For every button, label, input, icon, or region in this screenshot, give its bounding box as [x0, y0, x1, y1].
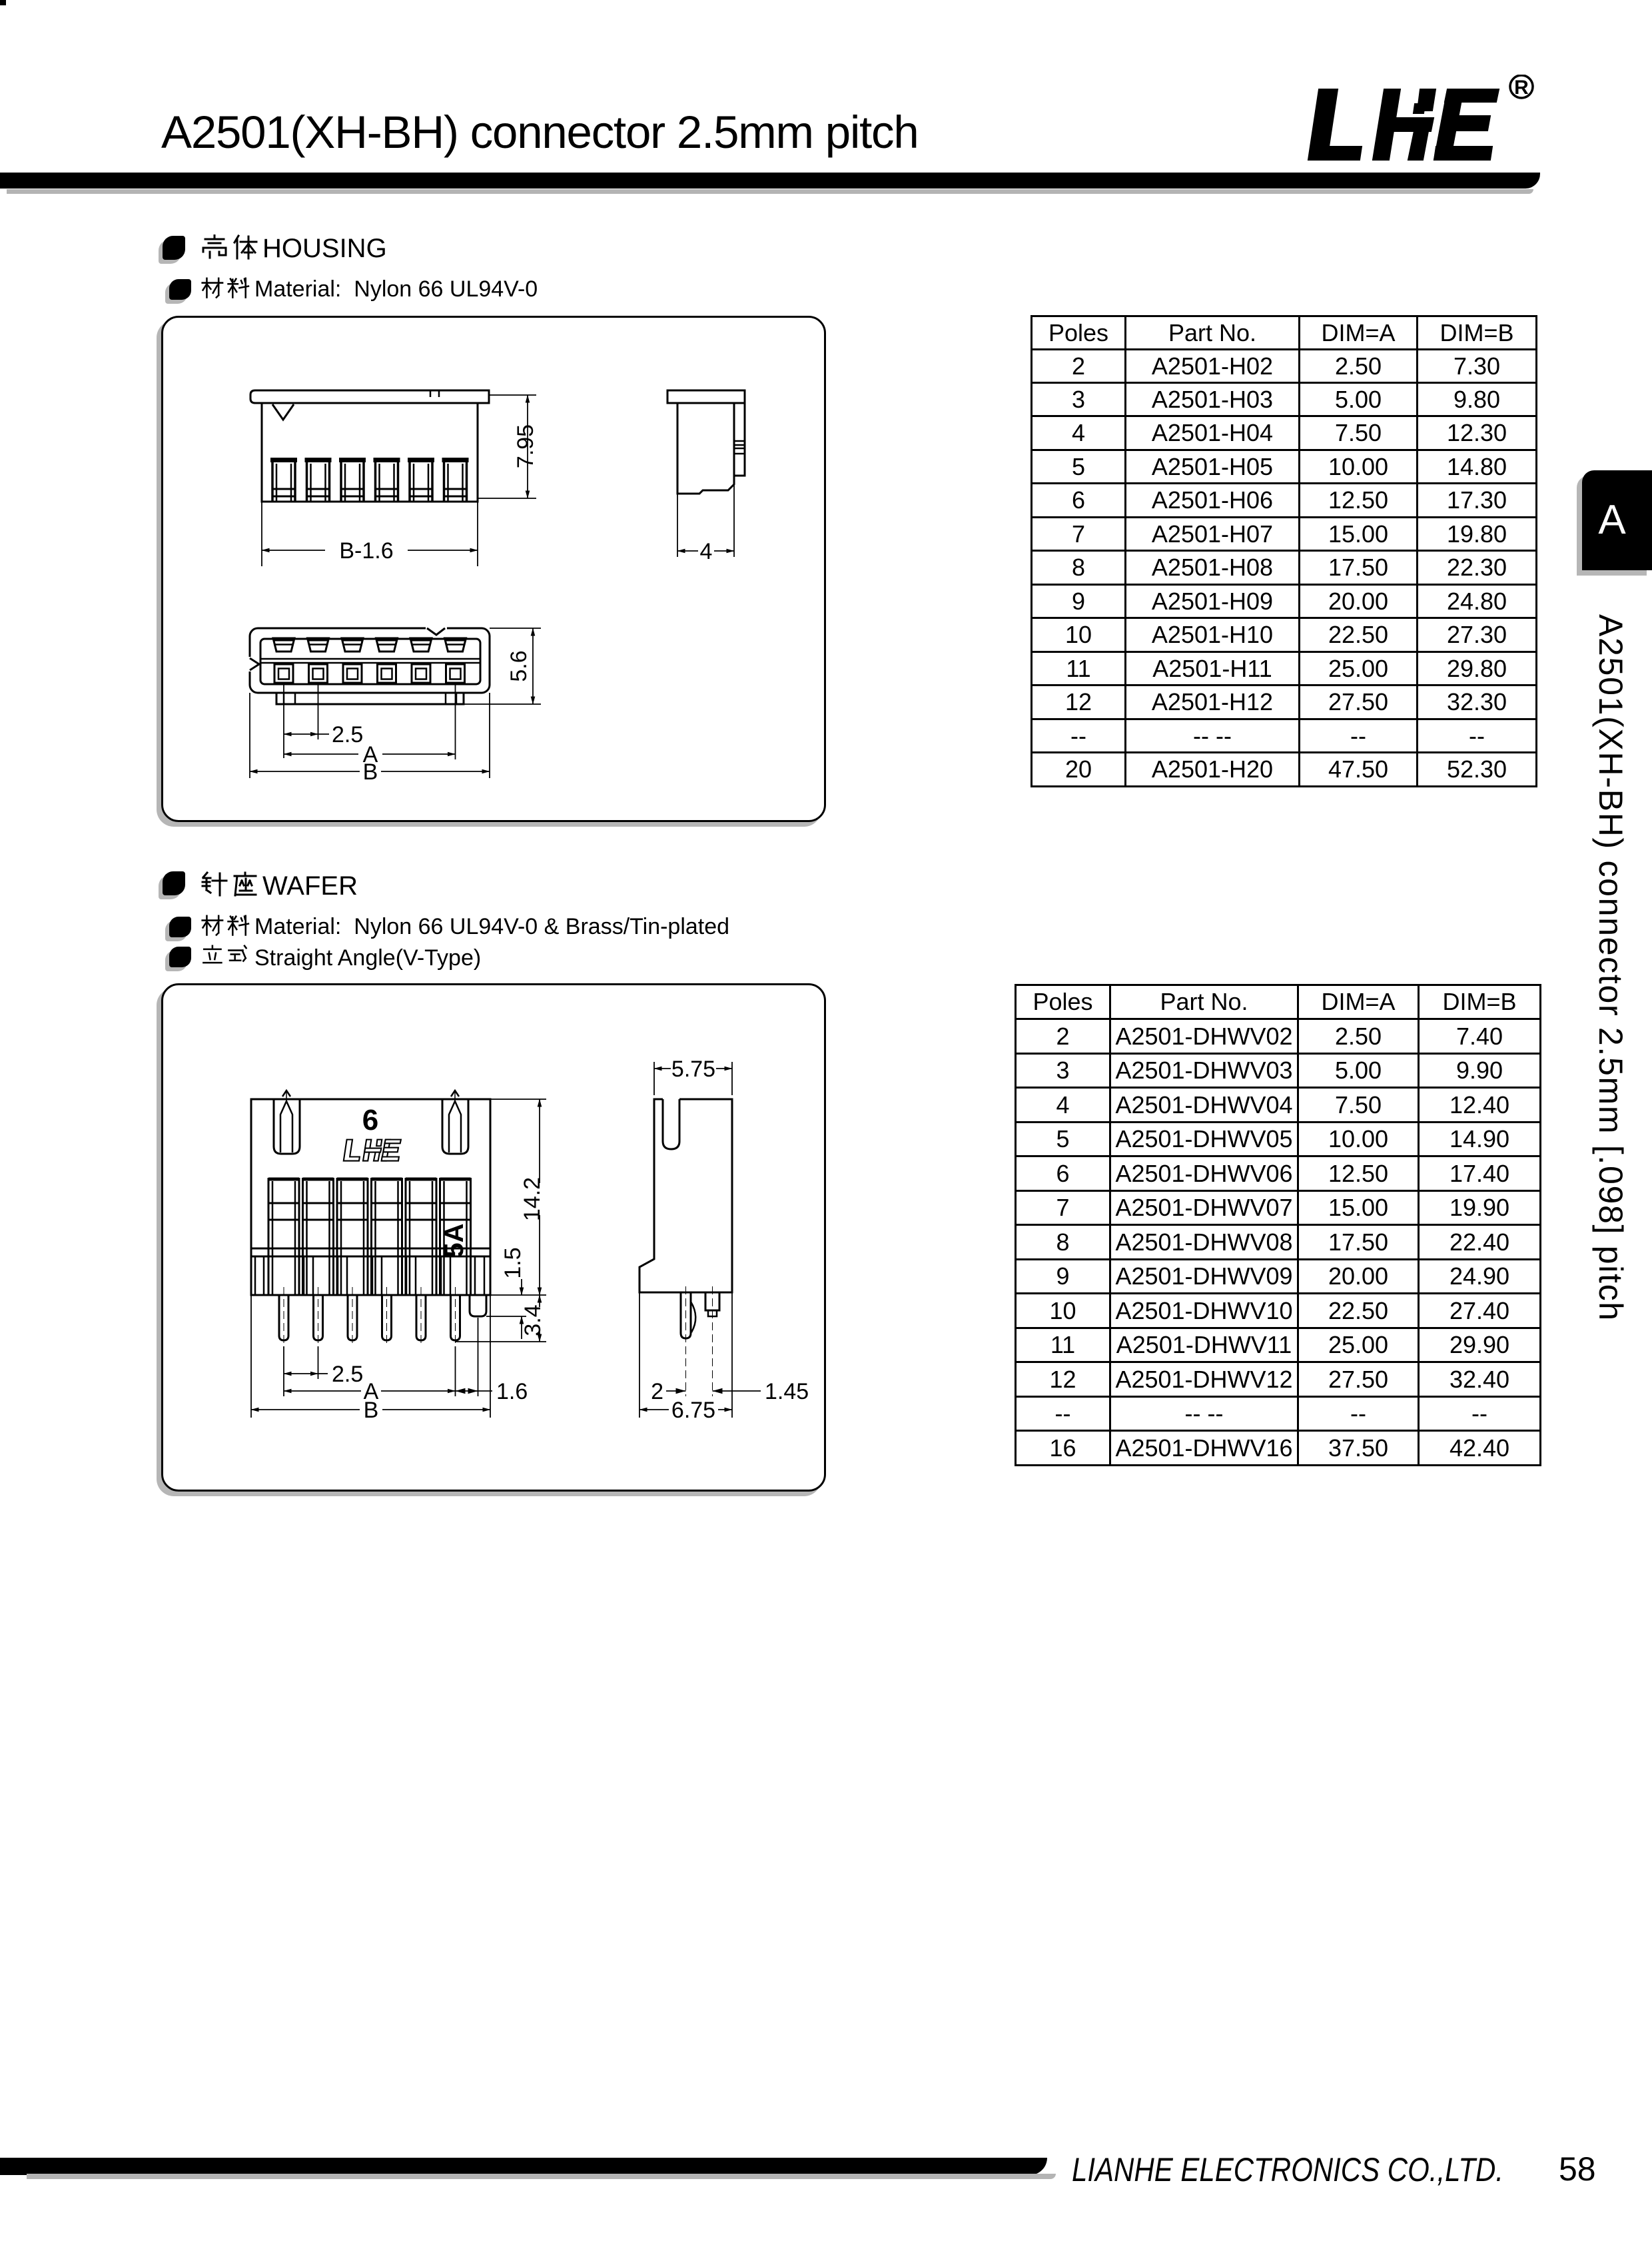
svg-text:2.5: 2.5 [332, 1362, 363, 1387]
svg-text:1.5: 1.5 [500, 1247, 526, 1278]
svg-text:5.6: 5.6 [506, 650, 532, 681]
svg-text:1.6: 1.6 [496, 1379, 528, 1404]
svg-text:6.75: 6.75 [671, 1398, 715, 1423]
svg-text:2.5: 2.5 [332, 722, 363, 747]
svg-text:5.75: 5.75 [671, 1057, 715, 1082]
svg-text:4: 4 [700, 539, 713, 564]
svg-text:6: 6 [362, 1104, 378, 1136]
svg-text:7.95: 7.95 [513, 424, 538, 468]
svg-text:B-1.6: B-1.6 [339, 538, 393, 564]
svg-text:B: B [363, 759, 378, 785]
svg-text:B: B [364, 1398, 379, 1423]
svg-text:R: R [1514, 77, 1529, 99]
svg-text:1.45: 1.45 [765, 1379, 809, 1404]
svg-text:3.4: 3.4 [520, 1304, 546, 1336]
svg-text:2: 2 [651, 1379, 663, 1404]
svg-text:14.2: 14.2 [520, 1177, 545, 1221]
